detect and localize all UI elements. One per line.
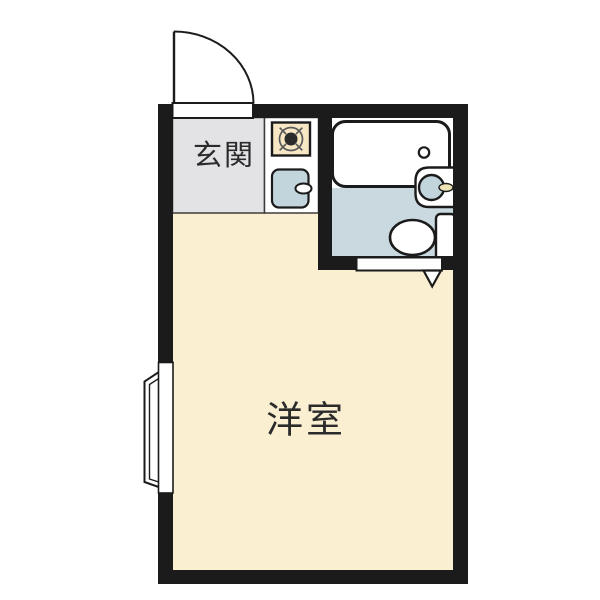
bay-window-icon <box>145 363 174 494</box>
wall-right <box>453 104 468 584</box>
bathtub-drain <box>419 147 429 157</box>
wall-kitchen-bath-divider <box>318 104 332 270</box>
wash-basin-icon <box>416 168 456 208</box>
entrance-door <box>173 32 254 119</box>
floor-plan-image: 玄関 洋室 <box>0 0 600 600</box>
kitchen-sink-icon <box>272 170 312 208</box>
main-room-label: 洋室 <box>266 400 346 441</box>
sink-faucet <box>296 184 312 194</box>
wall-bottom <box>158 570 468 584</box>
bathroom-door-panel <box>357 258 443 271</box>
floor-plan-canvas: 玄関 洋室 <box>0 0 600 600</box>
toilet-tank <box>436 214 456 261</box>
wall-left <box>158 104 173 584</box>
window-sill <box>159 363 174 494</box>
stove-burner-icon <box>272 123 310 156</box>
burner-center <box>285 133 298 146</box>
entrance-threshold <box>173 103 254 118</box>
toilet-bowl <box>390 220 435 255</box>
wash-basin-faucet <box>439 184 453 192</box>
genkan-label: 玄関 <box>193 139 255 172</box>
entrance-door-swing-arc <box>174 32 254 104</box>
